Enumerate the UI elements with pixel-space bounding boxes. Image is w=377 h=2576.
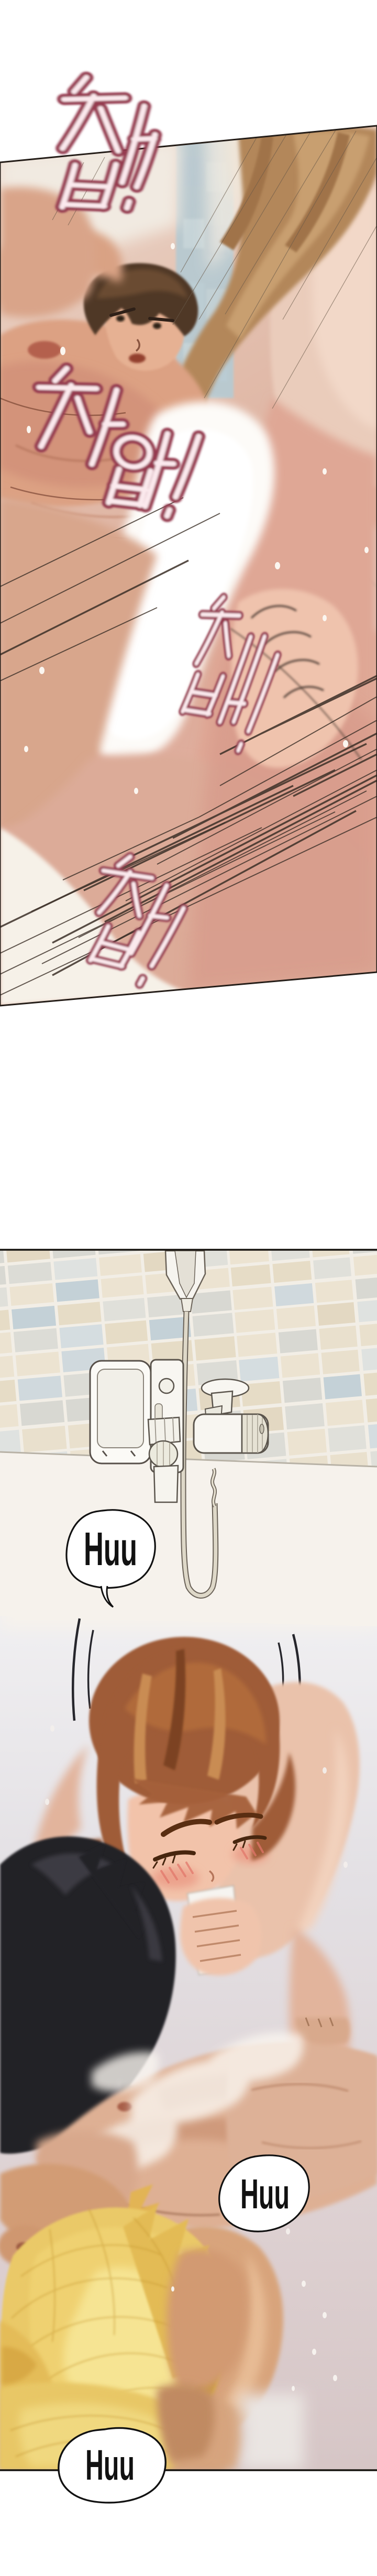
svg-text:Huu: Huu [240,2171,290,2217]
svg-text:Huu: Huu [85,2441,135,2489]
svg-text:Huu: Huu [84,1523,137,1576]
